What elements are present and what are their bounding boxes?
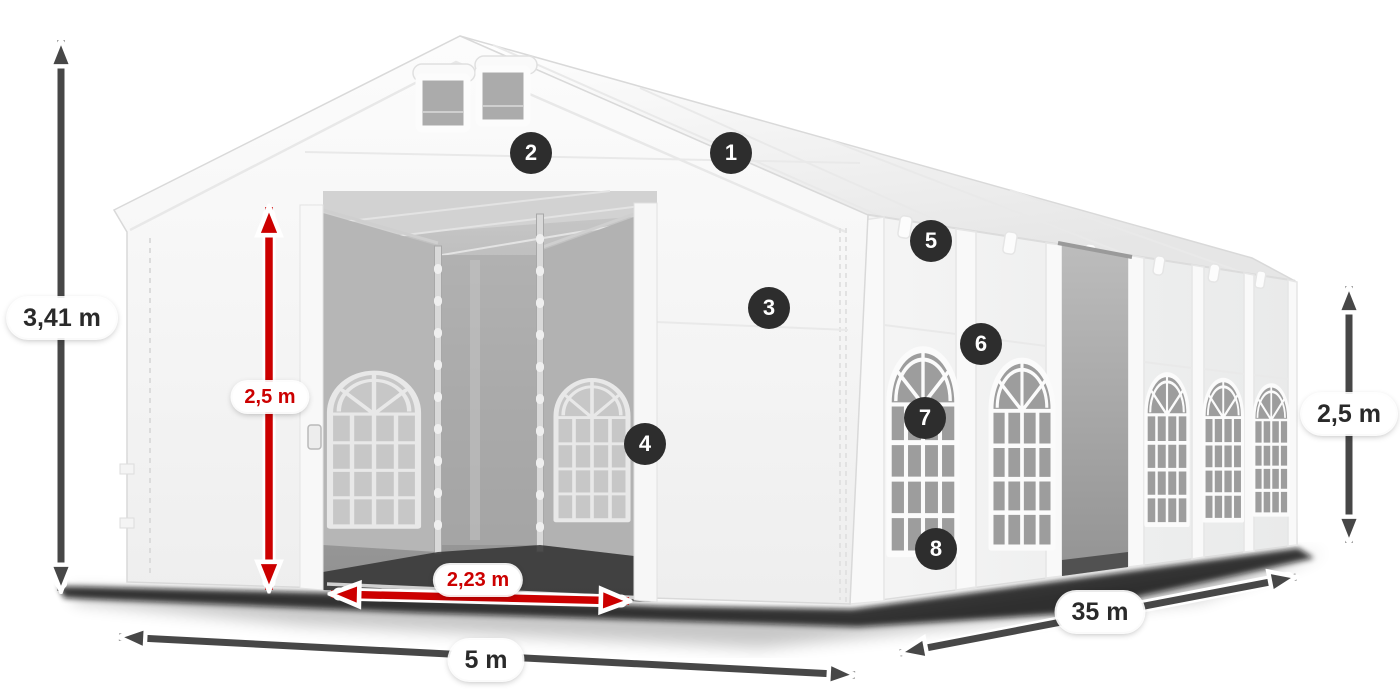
marker-badge-7: 7 xyxy=(904,397,946,439)
marker-badge-4: 4 xyxy=(624,423,666,465)
side-window xyxy=(1146,375,1188,525)
door-pole xyxy=(537,214,544,552)
curtain-window xyxy=(556,380,628,520)
marker-badge-1: 1 xyxy=(710,132,752,174)
dimension-label-front-width: 5 m xyxy=(449,640,522,680)
gable-vent xyxy=(419,77,467,129)
side-window xyxy=(889,350,957,554)
interior-back xyxy=(442,255,536,545)
marker-badge-8: 8 xyxy=(915,528,957,570)
side-door-opening xyxy=(1058,243,1132,576)
marker-badge-5: 5 xyxy=(910,220,952,262)
front-door-opening xyxy=(323,191,657,602)
marker-badge-2: 2 xyxy=(510,132,552,174)
side-post xyxy=(1128,255,1144,567)
door-jamb-right xyxy=(634,203,657,602)
dimension-label-door-width: 2,23 m xyxy=(435,565,521,595)
marker-badge-6: 6 xyxy=(960,323,1002,365)
strap-buckle xyxy=(120,464,134,474)
side-window xyxy=(991,361,1053,548)
dimension-arrow-door-width xyxy=(331,594,629,601)
door-handle xyxy=(308,425,321,449)
side-window xyxy=(1254,385,1289,514)
strap-buckle xyxy=(120,518,134,528)
dimension-label-total-height: 3,41 m xyxy=(8,298,116,338)
gable-vent xyxy=(479,69,527,123)
side-post xyxy=(1192,265,1204,559)
dimension-label-side-height: 2,5 m xyxy=(1302,394,1396,434)
curtain-window xyxy=(330,373,418,527)
tent-illustration xyxy=(0,0,1400,700)
side-post xyxy=(1244,273,1254,552)
side-window xyxy=(1204,380,1243,520)
dimension-label-side-length: 35 m xyxy=(1057,592,1144,632)
marker-badge-3: 3 xyxy=(748,287,790,329)
dimension-label-door-height: 2,5 m xyxy=(232,382,307,412)
tent-dimension-diagram: 3,41 m 2,5 m 2,23 m 5 m 35 m 2,5 m 1 2 3… xyxy=(0,0,1400,700)
